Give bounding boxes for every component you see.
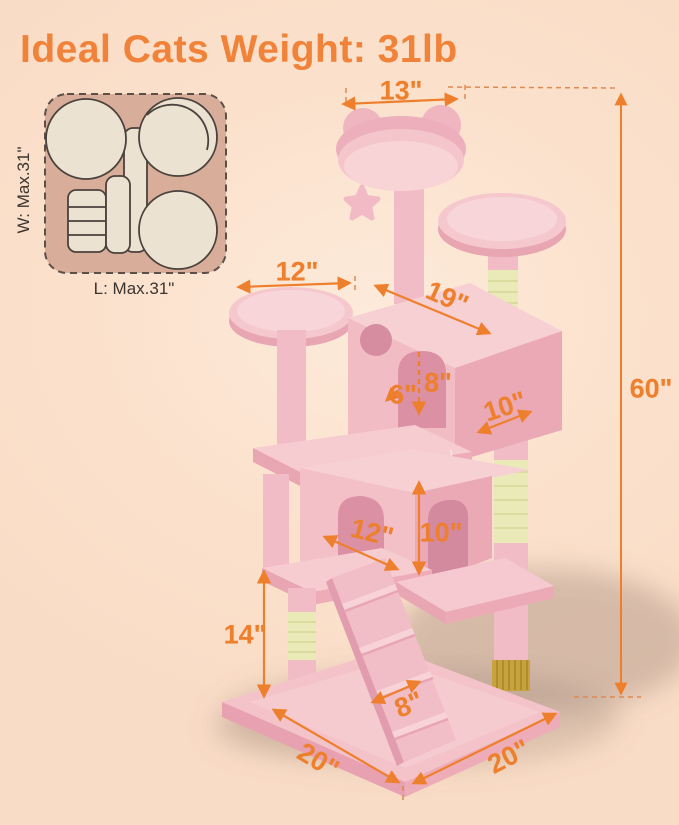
inset-left-perch-circle xyxy=(46,99,126,179)
inset-width-label: W: Max.31" xyxy=(14,147,34,234)
top-perch xyxy=(336,105,466,191)
dim-label-left-platform-width: 12" xyxy=(276,257,319,288)
page-title: Ideal Cats Weight: 31lb xyxy=(20,28,458,72)
inset-post-shape-short xyxy=(106,176,130,253)
cat-tree-scene xyxy=(0,0,679,825)
left-platform-post xyxy=(277,330,306,452)
dim-label-condo-door-height: 8" xyxy=(424,368,452,399)
right-round-platform xyxy=(438,193,566,257)
inset-length-label: L: Max.31" xyxy=(94,279,175,299)
mid-left-post xyxy=(263,474,289,572)
dim-label-total-height: 60" xyxy=(630,374,673,405)
condo-round-window xyxy=(360,324,392,356)
inset-top-right-perch-circle xyxy=(139,98,217,176)
top-perch-post xyxy=(394,172,424,304)
top-view-diagram xyxy=(45,94,226,273)
dim-label-top-perch-width: 13" xyxy=(380,76,423,107)
dim-label-lower-section-height: 14" xyxy=(224,620,267,651)
dim-label-house-height: 10" xyxy=(420,518,463,549)
dim-label-condo-door-width: 6" xyxy=(389,380,417,411)
product-infographic: Ideal Cats Weight: 31lb W: Max.31" L: Ma… xyxy=(0,0,679,825)
inset-bottom-right-perch-circle xyxy=(139,191,217,269)
